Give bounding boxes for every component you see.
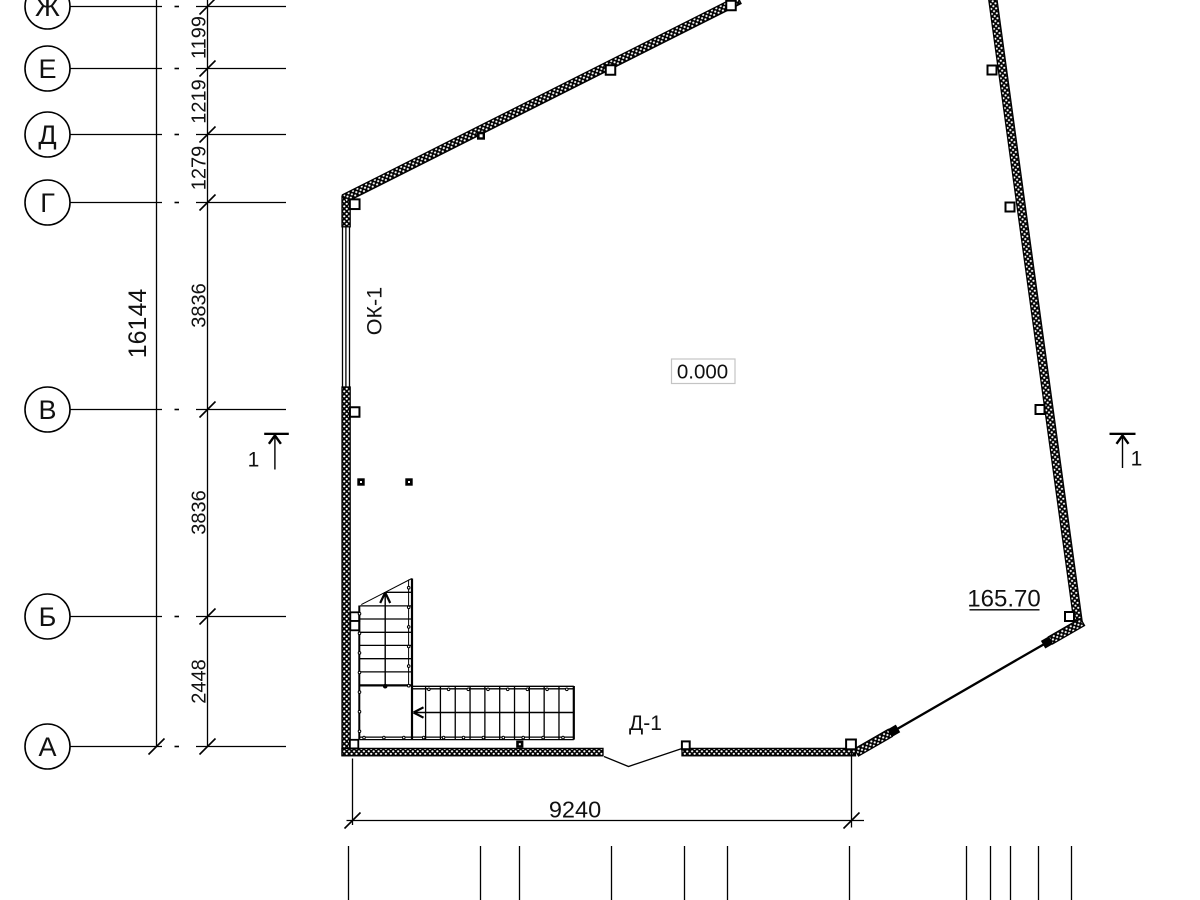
svg-text:Д-1: Д-1	[629, 712, 662, 735]
svg-text:0.000: 0.000	[677, 361, 728, 384]
svg-text:Г: Г	[40, 188, 55, 218]
svg-text:9240: 9240	[549, 797, 601, 823]
svg-text:В: В	[38, 395, 56, 425]
svg-text:1199: 1199	[189, 16, 211, 59]
svg-text:1: 1	[248, 449, 260, 472]
svg-text:Е: Е	[38, 54, 56, 84]
svg-text:Б: Б	[39, 602, 57, 632]
svg-text:3836: 3836	[189, 490, 211, 535]
svg-text:16144: 16144	[124, 289, 152, 359]
svg-text:А: А	[38, 732, 56, 762]
svg-text:Д: Д	[38, 120, 56, 150]
svg-text:1279: 1279	[189, 146, 211, 191]
svg-text:Ж: Ж	[35, 0, 60, 22]
svg-text:3836: 3836	[189, 283, 211, 328]
svg-text:2448: 2448	[189, 659, 211, 704]
svg-text:ОК-1: ОК-1	[363, 287, 387, 335]
svg-text:1219: 1219	[189, 79, 211, 124]
svg-text:1: 1	[1131, 448, 1143, 471]
svg-text:165.70: 165.70	[967, 586, 1040, 613]
